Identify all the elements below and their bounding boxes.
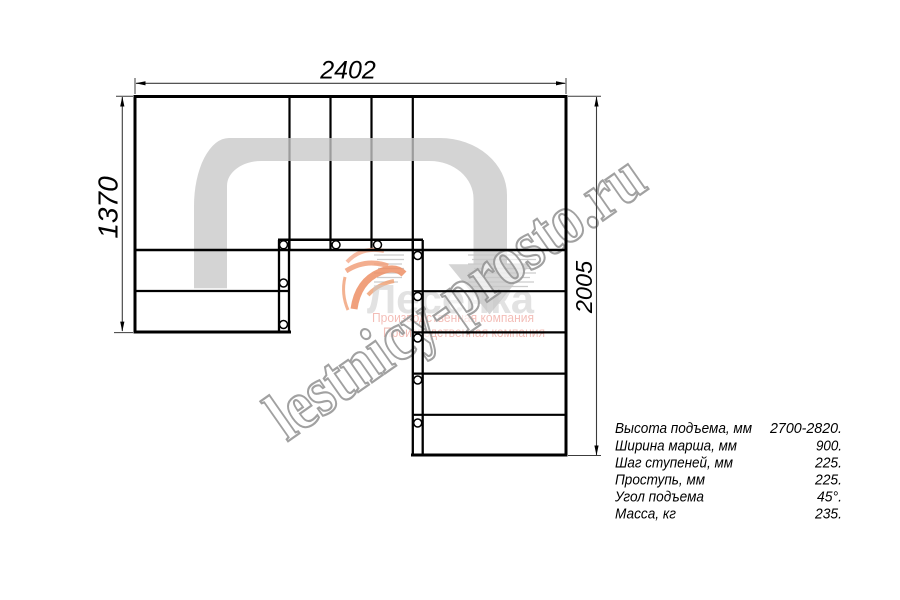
svg-text:1370: 1370 [93,176,124,239]
svg-text:Ширина марша, мм: Ширина марша, мм [615,438,737,455]
svg-text:45°.: 45°. [817,489,842,506]
svg-text:Проступь, мм: Проступь, мм [615,472,705,489]
svg-text:2005: 2005 [571,260,597,314]
svg-text:225.: 225. [814,472,842,489]
svg-text:225.: 225. [814,455,842,472]
svg-text:Масса, кг: Масса, кг [615,506,677,523]
svg-text:Высота подъема, мм: Высота подъема, мм [615,420,752,437]
svg-text:2402: 2402 [319,57,376,85]
svg-text:2700-2820.: 2700-2820. [769,420,842,437]
svg-text:Шаг ступеней, мм: Шаг ступеней, мм [615,455,733,472]
svg-text:Угол подъема: Угол подъема [614,489,704,506]
svg-text:235.: 235. [814,506,842,523]
svg-text:900.: 900. [816,438,842,455]
